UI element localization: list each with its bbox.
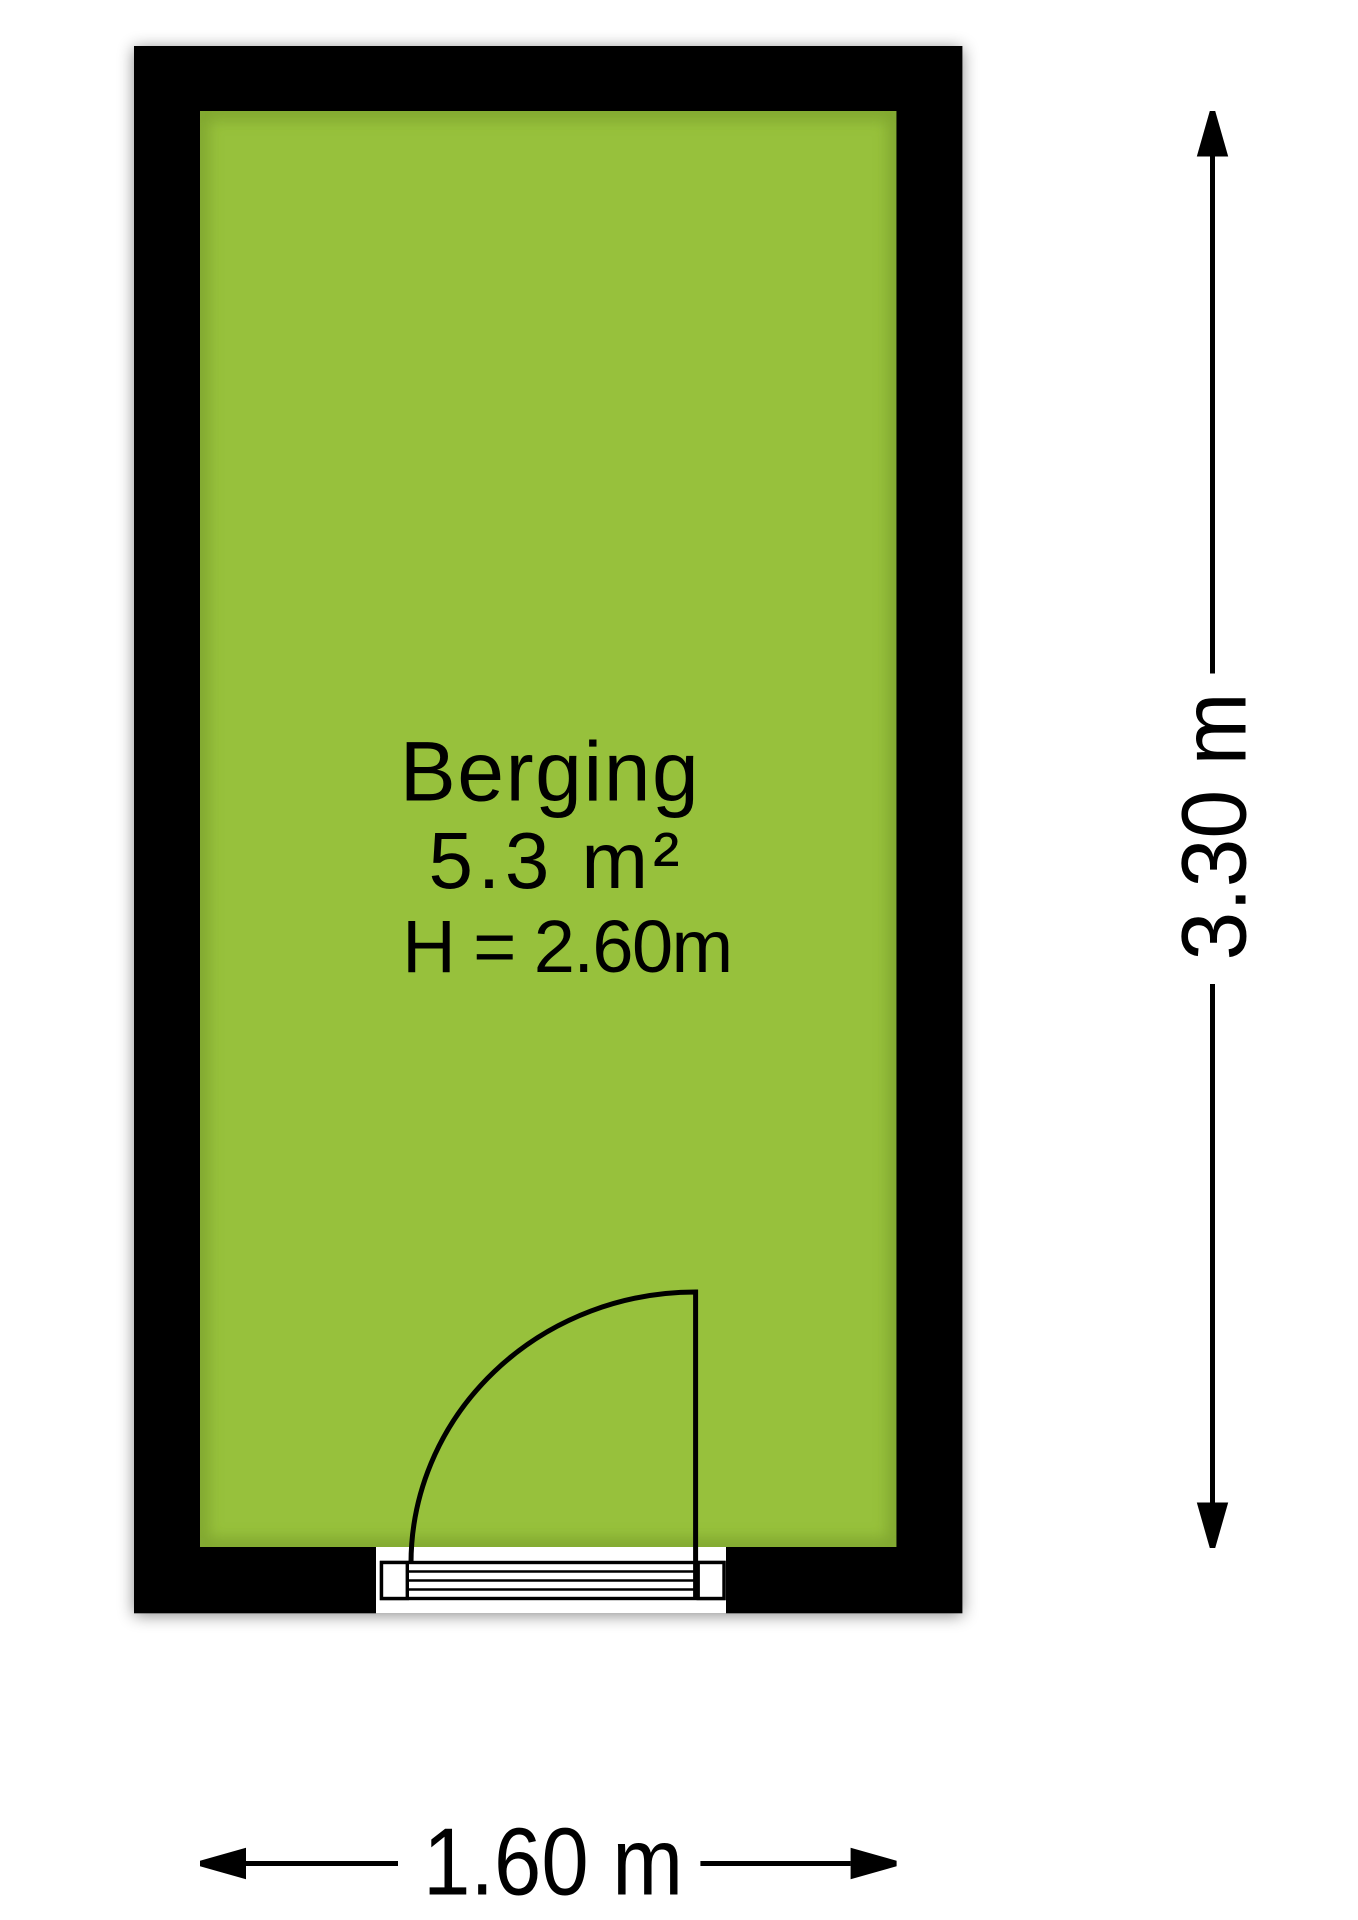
svg-text:H = 2.60m: H = 2.60m (402, 905, 733, 988)
svg-text:5.3 m²: 5.3 m² (429, 816, 680, 905)
svg-text:1.60 m: 1.60 m (423, 1808, 683, 1915)
svg-text:Berging: Berging (400, 725, 699, 819)
svg-text:3.30 m: 3.30 m (1164, 693, 1266, 961)
